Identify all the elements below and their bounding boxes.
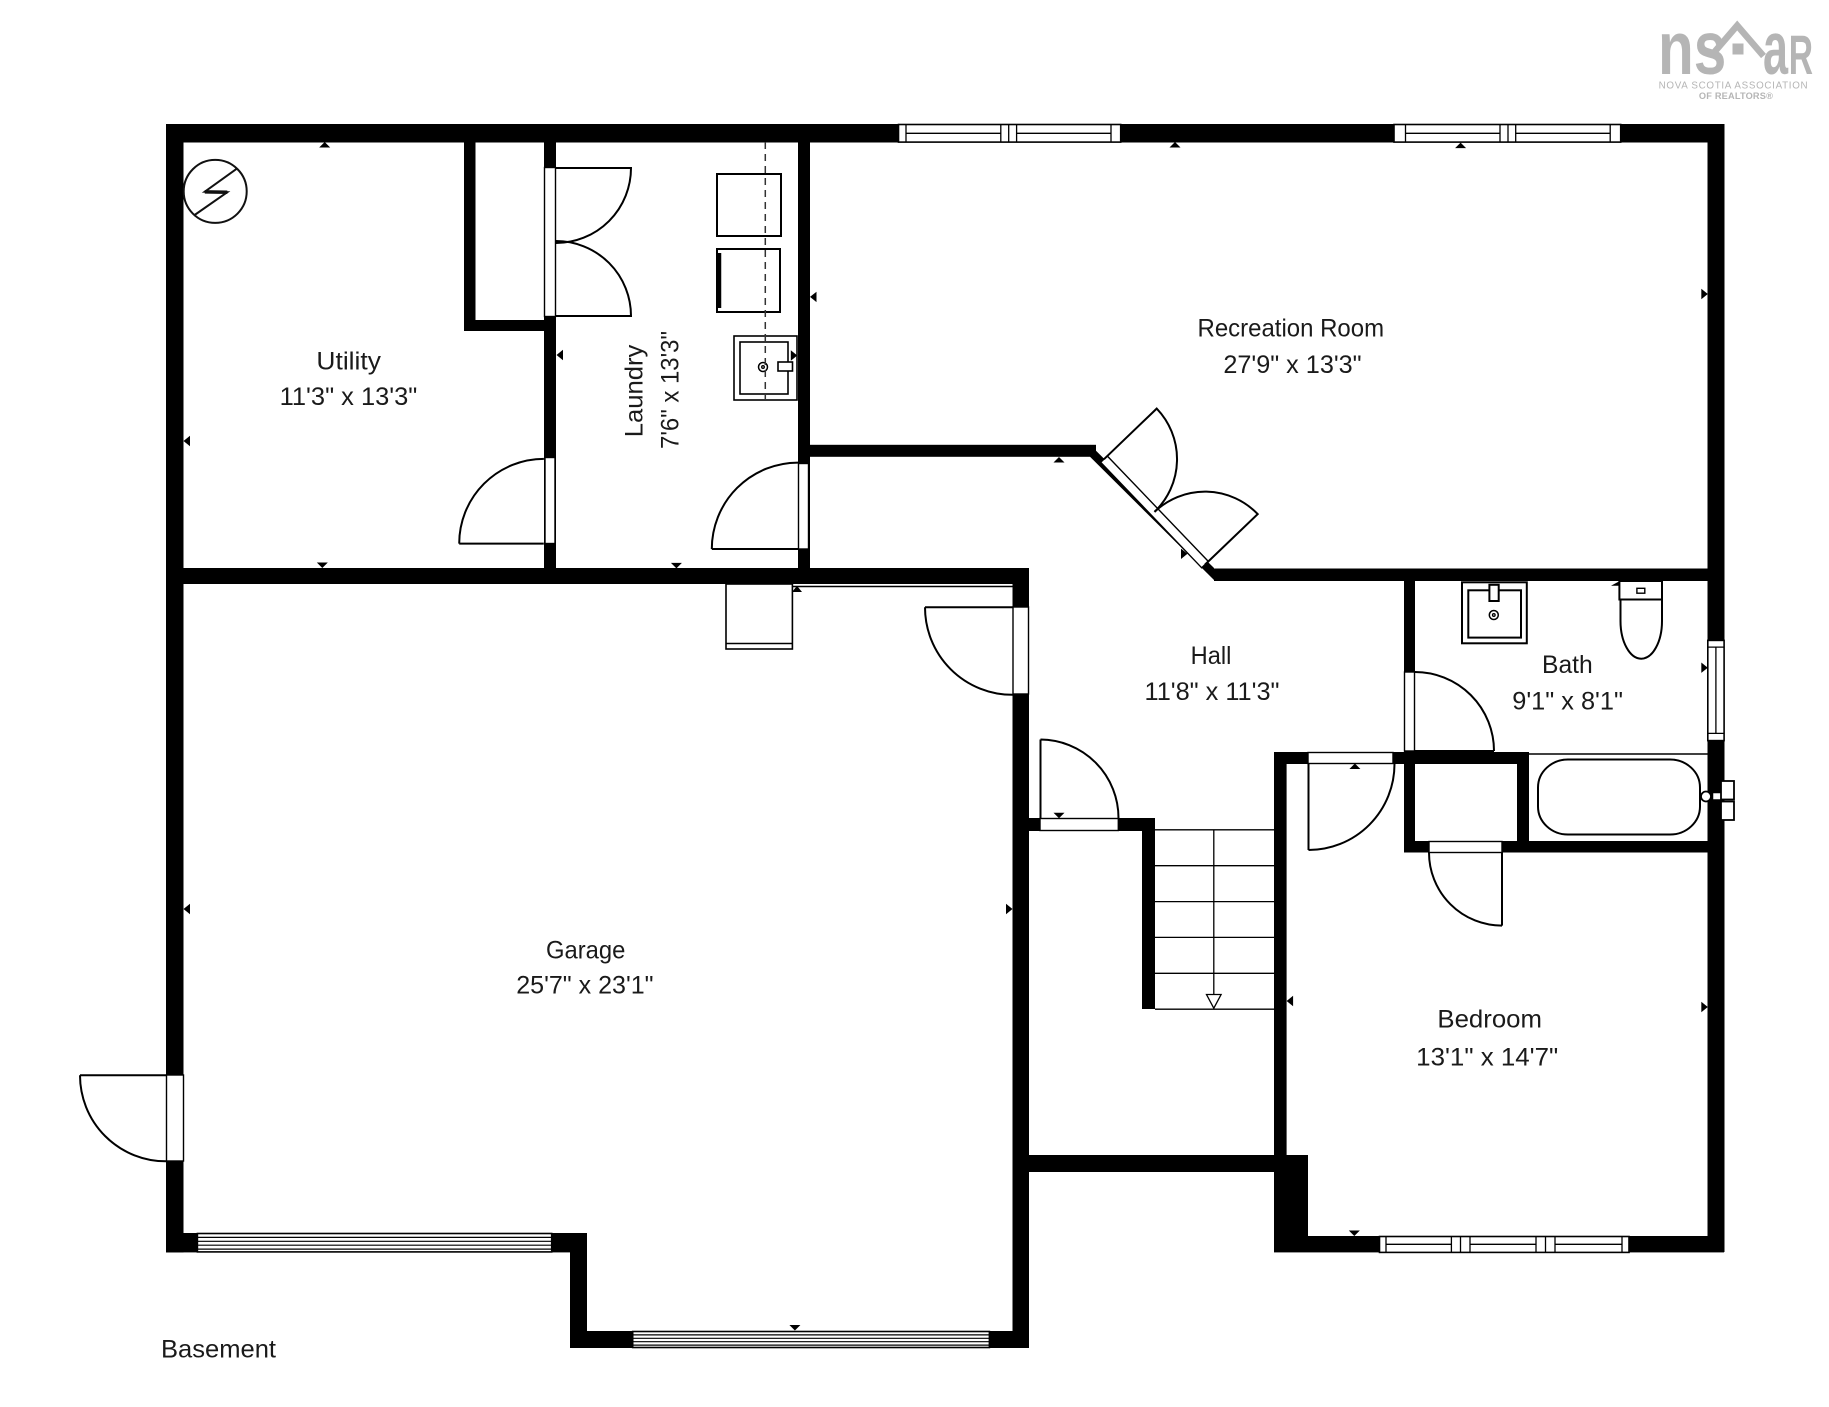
svg-text:27'9" x 13'3": 27'9" x 13'3" (1223, 352, 1361, 379)
svg-text:Utility: Utility (316, 349, 381, 376)
svg-text:Bath: Bath (1542, 652, 1593, 679)
svg-text:Laundry: Laundry (622, 344, 649, 437)
svg-text:11'8" x 11'3": 11'8" x 11'3" (1145, 679, 1280, 706)
svg-text:Garage: Garage (546, 937, 625, 964)
svg-text:Hall: Hall (1191, 643, 1232, 670)
svg-text:25'7" x 23'1": 25'7" x 23'1" (516, 973, 653, 1000)
svg-text:OF REALTORS®: OF REALTORS® (1699, 91, 1773, 101)
svg-text:Basement: Basement (161, 1336, 276, 1364)
svg-text:NOVA SCOTIA ASSOCIATION: NOVA SCOTIA ASSOCIATION (1659, 81, 1809, 92)
svg-text:Bedroom: Bedroom (1437, 1007, 1542, 1034)
svg-text:a: a (1763, 7, 1788, 91)
svg-text:R: R (1789, 23, 1813, 86)
svg-text:9'1" x 8'1": 9'1" x 8'1" (1512, 689, 1623, 716)
svg-text:7'6" x 13'3": 7'6" x 13'3" (658, 331, 685, 449)
svg-text:13'1" x 14'7": 13'1" x 14'7" (1416, 1044, 1558, 1071)
svg-text:11'3" x 13'3": 11'3" x 13'3" (280, 384, 418, 411)
svg-text:Recreation Room: Recreation Room (1198, 315, 1385, 342)
